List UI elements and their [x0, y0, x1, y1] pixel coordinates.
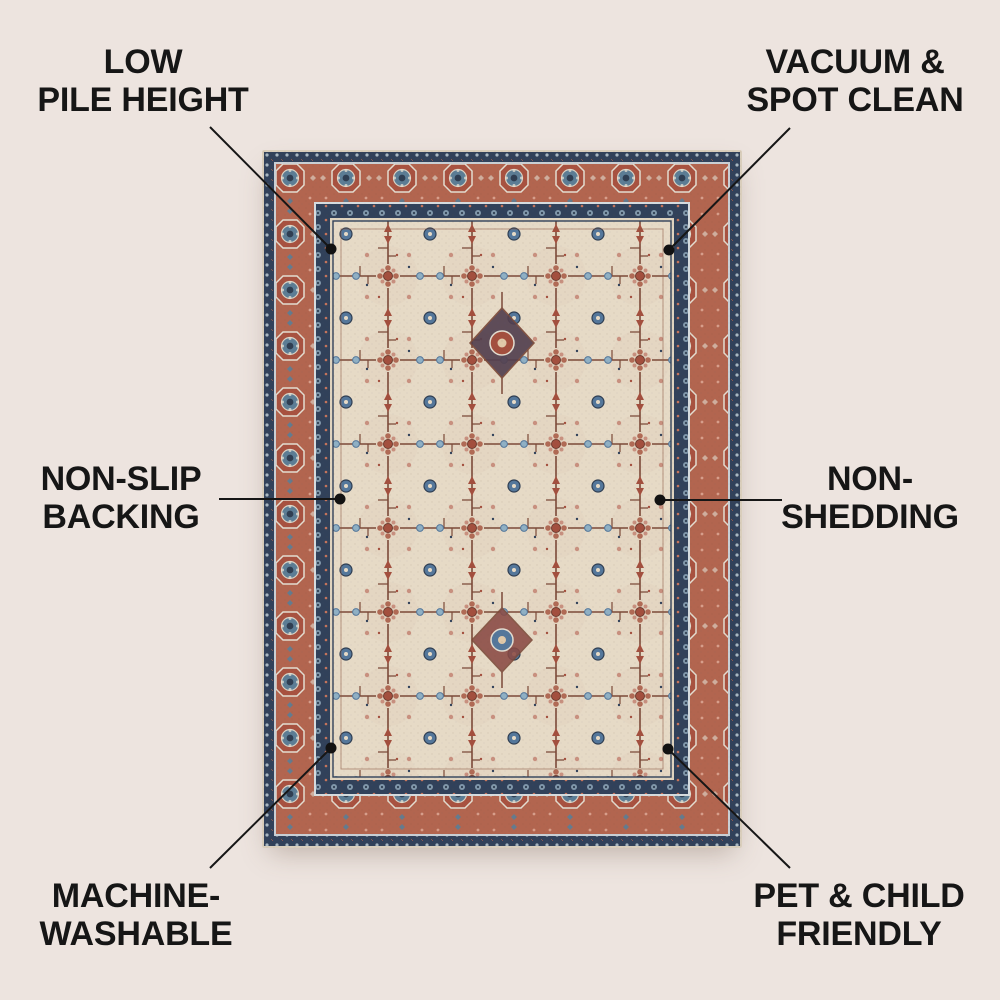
- callout-label-line: BACKING: [41, 498, 202, 536]
- callout-label-line: NON-SLIP: [41, 460, 202, 498]
- callout-label-line: LOW: [37, 43, 248, 81]
- callout-label-non-slip-backing: NON-SLIP BACKING: [41, 460, 202, 536]
- rug-image: [262, 150, 742, 848]
- callout-label-line: FRIENDLY: [753, 915, 964, 953]
- callout-label-line: SPOT CLEAN: [746, 81, 963, 119]
- callout-label-line: PET & CHILD: [753, 877, 964, 915]
- rug-art: [262, 150, 742, 848]
- rug-features-infographic: LOW PILE HEIGHT VACUUM & SPOT CLEAN NON-…: [0, 0, 1000, 1000]
- callout-label-line: WASHABLE: [40, 915, 233, 953]
- callout-label-line: VACUUM &: [746, 43, 963, 81]
- callout-label-low-pile-height: LOW PILE HEIGHT: [37, 43, 248, 119]
- callout-label-pet-child-friendly: PET & CHILD FRIENDLY: [753, 877, 964, 953]
- callout-label-line: PILE HEIGHT: [37, 81, 248, 119]
- callout-label-line: MACHINE-: [40, 877, 233, 915]
- callout-label-vacuum-spot-clean: VACUUM & SPOT CLEAN: [746, 43, 963, 119]
- callout-label-machine-washable: MACHINE- WASHABLE: [40, 877, 233, 953]
- callout-label-line: NON-: [781, 460, 959, 498]
- callout-label-line: SHEDDING: [781, 498, 959, 536]
- callout-label-non-shedding: NON- SHEDDING: [781, 460, 959, 536]
